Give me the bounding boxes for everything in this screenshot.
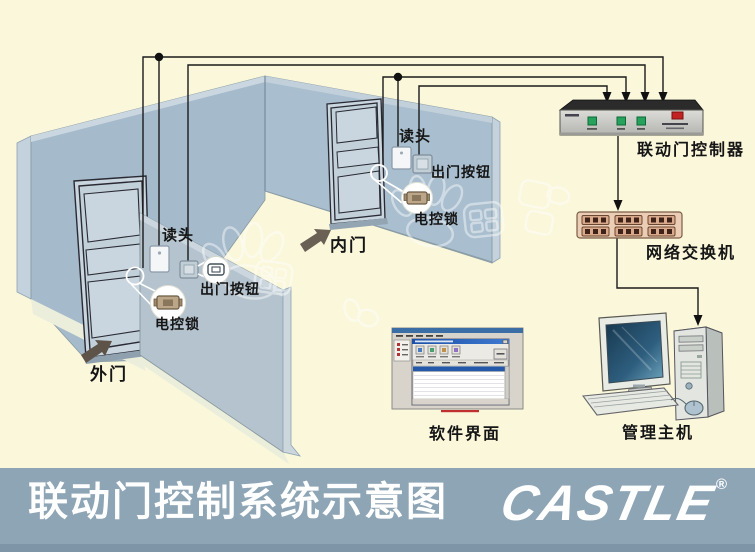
switch-label: 网络交换机 (646, 246, 736, 262)
inner-door-label: 内门 (330, 237, 368, 254)
outer-exit-button-callout (203, 257, 230, 284)
controller-button-2 (617, 117, 626, 125)
controller-button-3 (637, 117, 646, 125)
junction-dot-outer (155, 53, 163, 61)
title-bar-shadow (0, 544, 755, 552)
room-diagram-svg (0, 0, 755, 468)
partition-end-facet (283, 287, 300, 456)
title-bar: 联动门控制系统示意图 CASTLE ® (0, 468, 755, 552)
inner-door-panel-top (336, 107, 377, 143)
inner-lock-label: 电控锁 (414, 212, 459, 226)
software-label: 软件界面 (429, 427, 501, 443)
outer-exit-button-label: 出门按钮 (200, 282, 260, 296)
controller-label: 联动门控制器 (637, 143, 745, 159)
software-footer-red-text (441, 410, 479, 412)
inner-exit-button-label: 出门按钮 (431, 165, 491, 179)
outer-door-panel-top (84, 189, 140, 242)
controller-device (560, 100, 703, 135)
outer-card-reader (150, 246, 169, 272)
page-title: 联动门控制系统示意图 (28, 480, 448, 524)
outer-door-label: 外门 (90, 366, 128, 383)
outer-lock-label: 电控锁 (155, 317, 200, 331)
controller-top (560, 100, 703, 110)
software-window (392, 328, 523, 412)
keyboard (583, 388, 678, 415)
network-switch-device (577, 212, 682, 238)
brand-logo: CASTLE (497, 478, 720, 528)
management-host (583, 313, 724, 420)
controller-power-switch (672, 112, 683, 119)
inner-card-reader (392, 147, 411, 169)
software-tree-panel (394, 340, 410, 361)
inner-reader-label: 读头 (399, 129, 431, 144)
registered-trademark-icon: ® (716, 476, 727, 493)
tower-side (706, 327, 724, 417)
outer-reader-label: 读头 (162, 228, 194, 243)
back-wall-edge (492, 117, 500, 263)
junction-dot-inner (394, 73, 402, 81)
diagram-stage (0, 0, 755, 468)
left-wall-edge (17, 136, 31, 299)
host-label: 管理主机 (622, 426, 694, 442)
inner-door-arrow (300, 229, 331, 252)
controller-button-1 (588, 117, 597, 125)
inner-door-panel-bottom (338, 171, 380, 213)
